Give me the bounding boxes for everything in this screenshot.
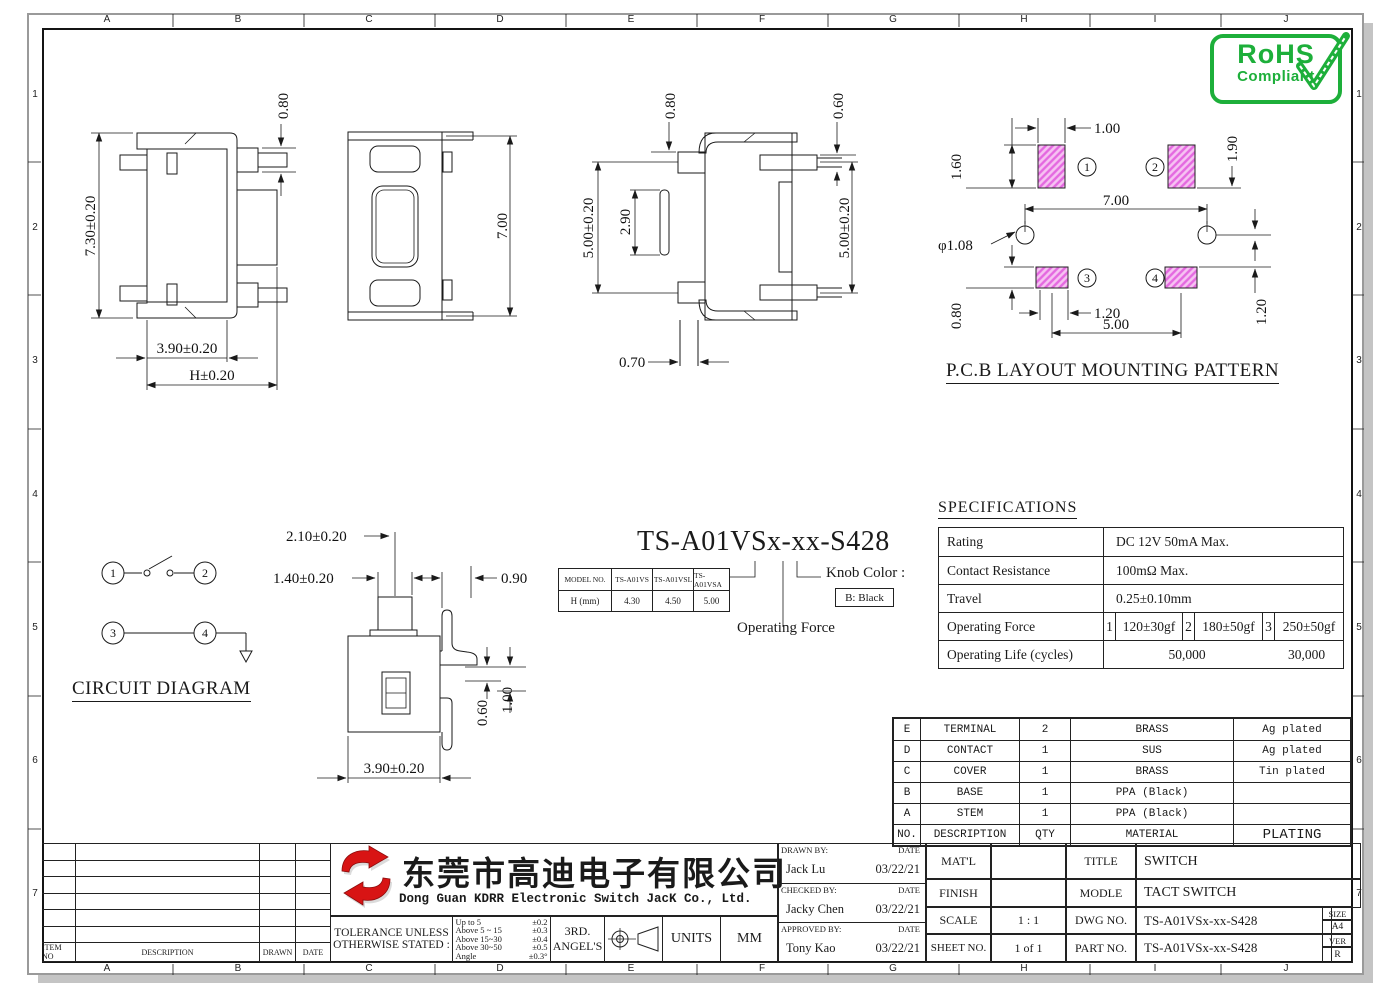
bom-header-material: MATERIAL <box>1071 825 1234 845</box>
grid-letter: G <box>886 14 900 25</box>
spec-value: DC 12V 50mA Max. <box>1104 528 1343 556</box>
knob-color-label: Knob Color : <box>826 565 905 582</box>
drawn-date: 03/22/21 <box>876 862 920 877</box>
bom-material: SUS <box>1071 741 1234 761</box>
specifications-title-text: SPECIFICATIONS <box>938 499 1077 519</box>
model-table: MODEL NO. TS-A01VS TS-A01VSL TS-A01VSA H… <box>558 568 730 612</box>
life-value: 30,000 <box>1270 641 1343 668</box>
bom-desc: COVER <box>921 762 1020 782</box>
tol-range: Angle <box>456 952 477 961</box>
model-header-cell: MODEL NO. <box>559 569 612 590</box>
date-label: DATE <box>898 924 920 934</box>
date-label: DATE <box>898 885 920 895</box>
grid-letter: D <box>493 14 507 25</box>
signoff-checked: CHECKED BY: DATE Jacky Chen 03/22/21 <box>778 883 926 923</box>
spec-label: Operating Life (cycles) <box>939 641 1104 668</box>
tol-value: ±0.3° <box>529 952 548 961</box>
grid-number: 3 <box>1352 355 1366 366</box>
grid-number: 1 <box>28 89 42 100</box>
spec-label: Contact Resistance <box>939 557 1104 584</box>
drawn-by-label: DRAWN BY: <box>781 845 828 855</box>
model-cell: 4.50 <box>653 591 694 611</box>
grid-letter: H <box>1017 963 1031 974</box>
bom-plating: Tin plated <box>1234 762 1350 782</box>
ver-value: R <box>1322 946 1353 963</box>
finish-value <box>990 878 1067 908</box>
bom-material: PPA (Black) <box>1071 804 1234 824</box>
bom-material: BRASS <box>1071 762 1234 782</box>
spec-label: Operating Force <box>939 613 1104 640</box>
part-number-code: TS-A01VSx-xx-S428 <box>637 526 890 558</box>
sheet-value: 1 of 1 <box>990 933 1067 963</box>
bom-row: B BASE 1 PPA (Black) <box>894 782 1350 803</box>
company-logo-icon <box>336 845 398 911</box>
grid-letter: E <box>624 14 638 25</box>
force-value: 120±30gf <box>1116 613 1183 640</box>
force-index: 2 <box>1183 613 1195 640</box>
projection-line2: ANGEL'S <box>553 939 603 954</box>
grid-number: 6 <box>1352 755 1366 766</box>
spec-value: 0.25±0.10mm <box>1104 585 1343 612</box>
revision-table: ITEM NO DESCRIPTION DRAWN DATE <box>42 843 330 962</box>
units-value: MM <box>720 916 778 962</box>
circuit-diagram-title-text: CIRCUIT DIAGRAM <box>72 678 251 702</box>
model-cell: 5.00 <box>694 591 729 611</box>
grid-letter: I <box>1148 14 1162 25</box>
bom-plating <box>1234 783 1350 803</box>
bom-desc: TERMINAL <box>921 719 1020 740</box>
model-header-cell: TS-A01VS <box>612 569 653 590</box>
grid-letter: A <box>100 14 114 25</box>
company-name-en: Dong Guan KDRR Electronic Switch JacK Co… <box>399 892 752 906</box>
drawn-by-name: Jack Lu <box>786 862 825 877</box>
grid-number: 2 <box>28 222 42 233</box>
company-name-cn: 东莞市高迪电子有限公司 <box>402 847 787 895</box>
spec-value: 100mΩ Max. <box>1104 557 1343 584</box>
model-header-cell: TS-A01VSA <box>694 569 729 590</box>
signoff-approved: APPROVED BY: DATE Tony Kao 03/22/21 <box>778 922 926 962</box>
model-cell: 4.30 <box>612 591 653 611</box>
bom-no: D <box>894 741 921 761</box>
spec-label: Travel <box>939 585 1104 612</box>
revision-header-row: ITEM NO DESCRIPTION DRAWN DATE <box>42 943 330 962</box>
grid-letter: I <box>1148 963 1162 974</box>
revision-header: DRAWN <box>260 943 296 961</box>
spec-label: Rating <box>939 528 1104 556</box>
grid-number: 5 <box>28 622 42 633</box>
grid-letter: B <box>231 963 245 974</box>
grid-letter: H <box>1017 14 1031 25</box>
approved-date: 03/22/21 <box>876 941 920 956</box>
finish-label: FINISH <box>925 878 992 908</box>
revision-header: DESCRIPTION <box>76 943 260 961</box>
tolerance-block: TOLERANCE UNLESS OTHERWISE STATED : Up t… <box>330 915 779 963</box>
specifications-table: Rating DC 12V 50mA Max. Contact Resistan… <box>938 527 1344 669</box>
bom-row: C COVER 1 BRASS Tin plated <box>894 761 1350 782</box>
approved-by-label: APPROVED BY: <box>781 924 841 934</box>
bom-qty: 1 <box>1020 804 1071 824</box>
grid-letter: C <box>362 963 376 974</box>
bom-row: D CONTACT 1 SUS Ag plated <box>894 740 1350 761</box>
spec-row: Travel 0.25±0.10mm <box>939 584 1343 612</box>
date-label: DATE <box>898 845 920 855</box>
first-angle-projection-icon <box>606 919 662 959</box>
rohs-checkmark-icon <box>1292 28 1354 100</box>
bom-header-row: NO. DESCRIPTION QTY MATERIAL PLATING <box>894 824 1350 845</box>
grid-letter: C <box>362 14 376 25</box>
dwg-no-value: TS-A01VSx-xx-S428 <box>1135 906 1332 935</box>
bom-table: E TERMINAL 2 BRASS Ag plated D CONTACT 1… <box>892 717 1352 847</box>
signoff-block: DRAWN BY: DATE Jack Lu 03/22/21 CHECKED … <box>777 843 927 963</box>
bom-material: PPA (Black) <box>1071 783 1234 803</box>
bom-no: B <box>894 783 921 803</box>
bom-no: A <box>894 804 921 824</box>
bom-qty: 1 <box>1020 741 1071 761</box>
projection-symbol-cell <box>604 916 662 962</box>
matl-value <box>990 843 1067 880</box>
bom-material: BRASS <box>1071 719 1234 740</box>
bom-plating: Ag plated <box>1234 741 1350 761</box>
bom-desc: BASE <box>921 783 1020 803</box>
approved-by-name: Tony Kao <box>786 941 835 956</box>
spec-row-operating-force: Operating Force 1 120±30gf 2 180±50gf 3 … <box>939 612 1343 640</box>
bom-row: E TERMINAL 2 BRASS Ag plated <box>894 719 1350 740</box>
scale-label: SCALE <box>925 906 992 935</box>
bom-no: E <box>894 719 921 740</box>
spec-row: Rating DC 12V 50mA Max. <box>939 528 1343 556</box>
grid-number: 4 <box>28 489 42 500</box>
bom-desc: STEM <box>921 804 1020 824</box>
spec-row: Contact Resistance 100mΩ Max. <box>939 556 1343 584</box>
bom-plating <box>1234 804 1350 824</box>
tolerance-label: TOLERANCE UNLESS OTHERWISE STATED : <box>331 916 452 962</box>
bom-plating: Ag plated <box>1234 719 1350 740</box>
checked-date: 03/22/21 <box>876 902 920 917</box>
projection-label: 3RD. ANGEL'S <box>550 916 604 962</box>
model-label: MODLE <box>1065 878 1137 908</box>
model-value: TACT SWITCH <box>1135 878 1361 908</box>
force-index: 1 <box>1104 613 1116 640</box>
dwg-no-label: DWG NO. <box>1065 906 1137 935</box>
matl-label: MAT'L <box>925 843 992 880</box>
circuit-diagram-title: CIRCUIT DIAGRAM <box>72 678 251 702</box>
grid-letter: D <box>493 963 507 974</box>
revision-header: ITEM NO <box>42 943 76 961</box>
scale-value: 1 : 1 <box>990 906 1067 935</box>
bom-desc: CONTACT <box>921 741 1020 761</box>
grid-letter: B <box>231 14 245 25</box>
revision-header: DATE <box>296 943 330 961</box>
title-label: TITLE <box>1065 843 1137 880</box>
signoff-drawn: DRAWN BY: DATE Jack Lu 03/22/21 <box>778 844 926 883</box>
bom-header-plating: PLATING <box>1234 825 1350 845</box>
spec-row-operating-life: Operating Life (cycles) 50,000 30,000 <box>939 640 1343 668</box>
grid-letter: E <box>624 963 638 974</box>
bom-header-desc: DESCRIPTION <box>921 825 1020 845</box>
sheet-label: SHEET NO. <box>925 933 992 963</box>
projection-line1: 3RD. <box>565 924 591 939</box>
grid-letter: J <box>1279 963 1293 974</box>
force-value: 250±50gf <box>1275 613 1343 640</box>
bom-qty: 1 <box>1020 783 1071 803</box>
grid-number: 7 <box>28 888 42 899</box>
grid-letter: G <box>886 963 900 974</box>
grid-letter: F <box>755 14 769 25</box>
grid-number: 6 <box>28 755 42 766</box>
grid-letter: F <box>755 963 769 974</box>
grid-letter: J <box>1279 14 1293 25</box>
model-table-header: MODEL NO. TS-A01VS TS-A01VSL TS-A01VSA <box>559 569 729 590</box>
bom-header-qty: QTY <box>1020 825 1071 845</box>
grid-number: 4 <box>1352 489 1366 500</box>
bom-no: C <box>894 762 921 782</box>
bom-qty: 2 <box>1020 719 1071 740</box>
pcb-layout-title-text: P.C.B LAYOUT MOUNTING PATTERN <box>946 360 1279 384</box>
title-value: SWITCH <box>1135 843 1361 880</box>
model-cell: H (mm) <box>559 591 612 611</box>
force-value: 180±50gf <box>1195 613 1263 640</box>
bom-row: A STEM 1 PPA (Black) <box>894 803 1350 824</box>
specifications-title: SPECIFICATIONS <box>938 499 1077 519</box>
checked-by-label: CHECKED BY: <box>781 885 837 895</box>
tolerance-values: Up to 5±0.2 Above 5 ~ 15±0.3 Above 15~30… <box>452 916 550 962</box>
grid-letter: A <box>100 963 114 974</box>
units-label: UNITS <box>662 916 720 962</box>
life-value: 50,000 <box>1104 641 1270 668</box>
force-index: 3 <box>1263 613 1275 640</box>
bom-qty: 1 <box>1020 762 1071 782</box>
grid-number: 1 <box>1352 89 1366 100</box>
checked-by-name: Jacky Chen <box>786 902 844 917</box>
tolerance-label-line1: TOLERANCE UNLESS <box>334 927 448 939</box>
model-header-cell: TS-A01VSL <box>653 569 694 590</box>
bom-header-no: NO. <box>894 825 921 845</box>
grid-number: 5 <box>1352 622 1366 633</box>
pcb-layout-title: P.C.B LAYOUT MOUNTING PATTERN <box>946 360 1279 384</box>
part-no-label: PART NO. <box>1065 933 1137 963</box>
operating-force-label: Operating Force <box>737 620 835 637</box>
knob-color-value-box: B: Black <box>835 588 894 607</box>
grid-number: 3 <box>28 355 42 366</box>
tolerance-label-line2: OTHERWISE STATED : <box>333 939 450 951</box>
part-no-value: TS-A01VSx-xx-S428 <box>1135 933 1332 963</box>
grid-number: 2 <box>1352 222 1366 233</box>
model-table-row: H (mm) 4.30 4.50 5.00 <box>559 590 729 611</box>
